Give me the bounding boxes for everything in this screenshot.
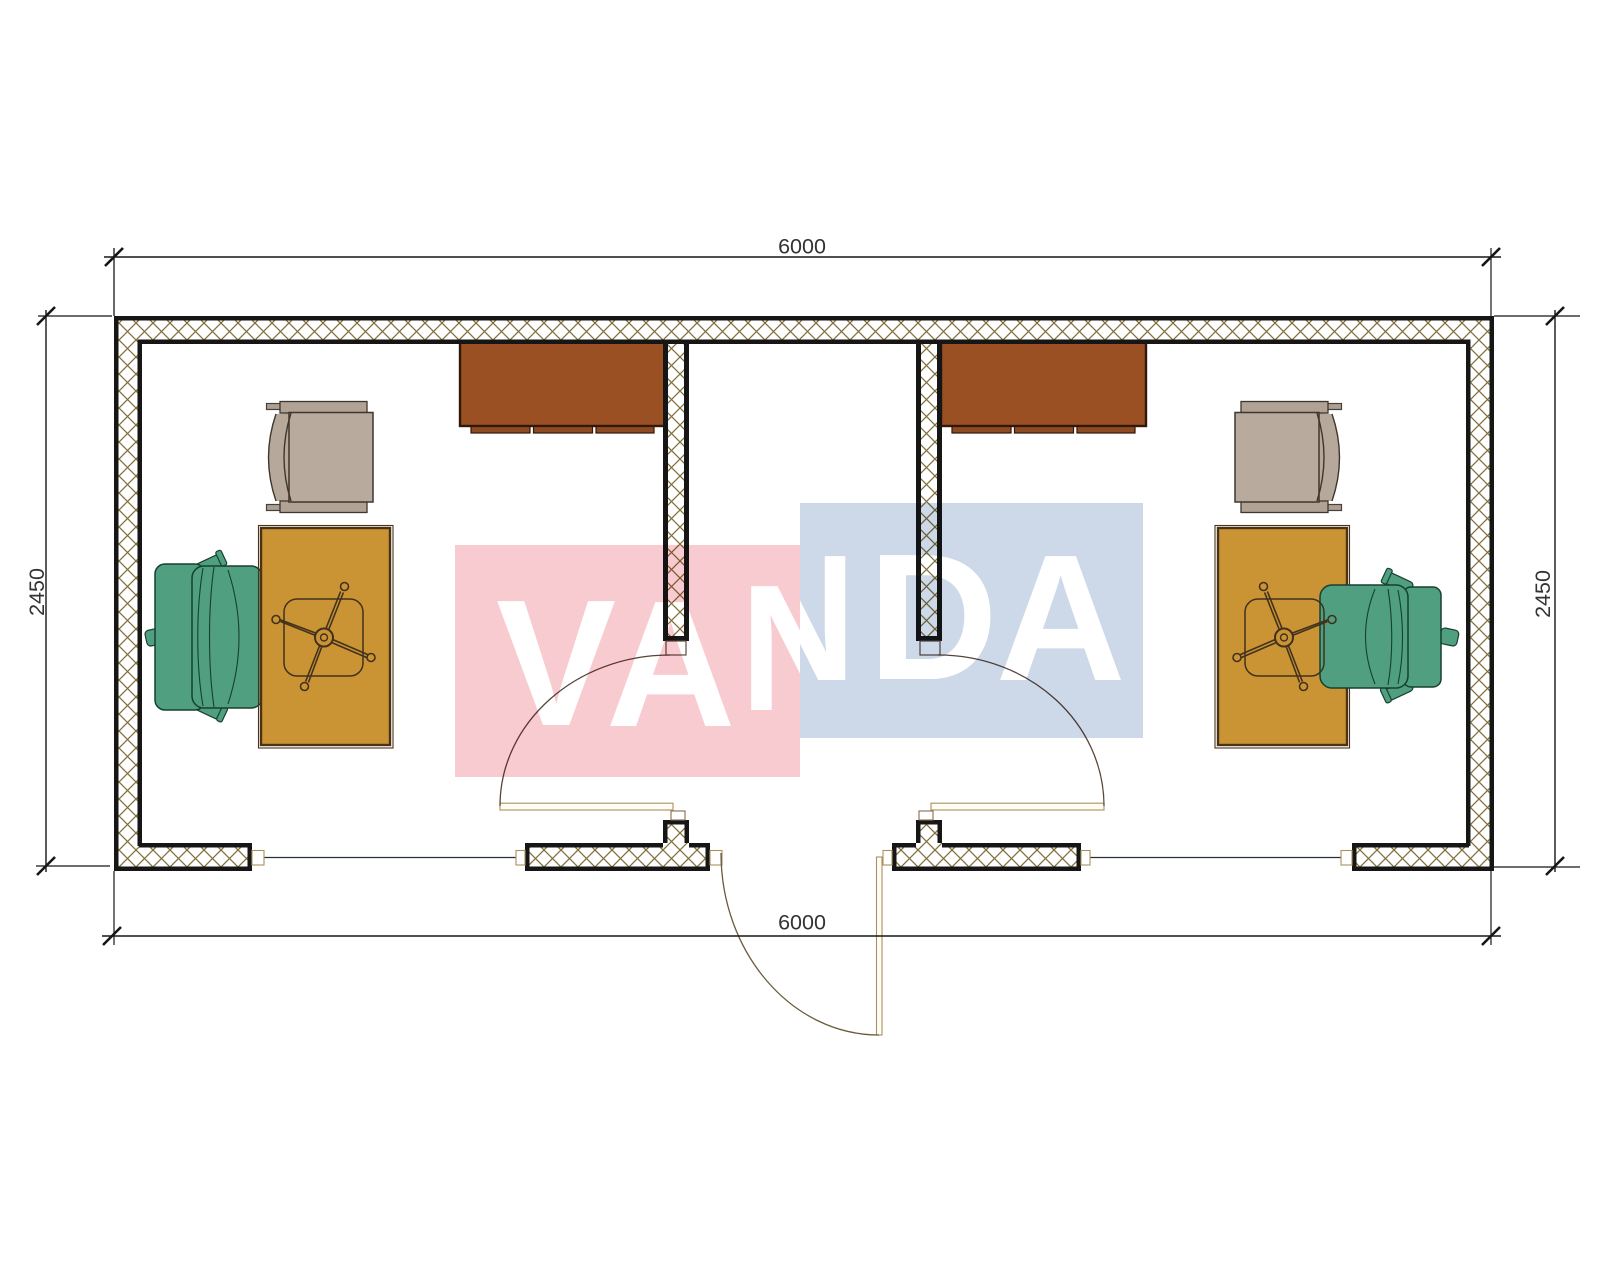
svg-text:2450: 2450 bbox=[1531, 570, 1555, 618]
svg-text:D: D bbox=[868, 517, 998, 718]
svg-text:6000: 6000 bbox=[778, 911, 826, 935]
svg-text:A: A bbox=[606, 564, 736, 765]
svg-text:2450: 2450 bbox=[25, 568, 49, 616]
svg-text:V: V bbox=[496, 563, 616, 764]
svg-text:6000: 6000 bbox=[778, 235, 826, 259]
svg-text:A: A bbox=[996, 518, 1126, 719]
